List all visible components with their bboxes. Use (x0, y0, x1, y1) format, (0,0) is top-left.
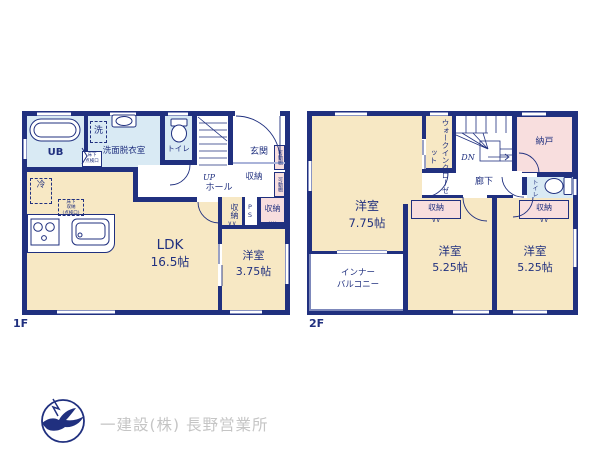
label-pipe-space: PS (246, 200, 256, 222)
label-yoshitsu-b-size: 5.25帖 (497, 262, 573, 275)
label-entrance-closet: 収納 (236, 173, 272, 183)
logo-zigzag (53, 399, 59, 416)
window (168, 112, 188, 116)
label-underfloor-storage: 床下 収納 (点検口) (58, 200, 84, 216)
label-fridge: 冷 (30, 181, 52, 191)
closet-door-marks: ∨∨ (260, 221, 285, 228)
closet-door-marks: ∨∨ (519, 218, 569, 225)
window (430, 112, 448, 116)
label-ldk: LDK (133, 238, 207, 254)
label-roka: 廊下 (456, 177, 512, 187)
label-underfloor-hatch: 床下 点検口 (82, 153, 102, 165)
label-nando: 納戸 (516, 137, 573, 147)
ufs-line3: (点検口) (62, 211, 79, 216)
floor2-plan: 洋室 7.75帖 ウォークインクローゼット DN 納戸 廊下 トイレ 収納 収納… (307, 111, 578, 315)
window (285, 244, 289, 284)
label-wic: ウォークインクローゼット (427, 118, 451, 194)
company-name: 一建設(株) 長野営業所 (100, 413, 269, 435)
label-movable-shelf-2: 可動棚 (275, 173, 284, 196)
room-unit-bath (27, 116, 84, 167)
floorplan-image: UB 洗 洗面脱衣室 床下 点検口 トイレ UP ホール 玄関 収納 可動棚 可… (0, 0, 600, 450)
window (308, 161, 312, 191)
closet-door-marks: ∨∨ (411, 218, 461, 225)
label-dn: DN (458, 153, 478, 162)
label-balcony-line1: インナー (317, 269, 399, 279)
label-closet-b: 収納 (519, 203, 569, 212)
entrance-door-opening (235, 111, 280, 116)
window (573, 179, 577, 195)
label-yoshitsu-1f-size: 3.75帖 (222, 266, 285, 279)
window (337, 250, 387, 254)
yoshitsu-a-door-opening (463, 195, 487, 198)
yoshitsu-main-door-opening (422, 173, 426, 195)
label-yoshitsu-a: 洋室 (408, 245, 492, 258)
stairs-area-2f (456, 116, 512, 171)
label-yoshitsu-main: 洋室 (317, 200, 417, 214)
label-ldk-size: 16.5帖 (133, 256, 207, 270)
label-up: UP (198, 173, 220, 182)
ufs-line2: 収納 (67, 205, 76, 210)
window (110, 112, 136, 116)
label-washer: 洗 (90, 126, 107, 136)
label-yoshitsu-a-size: 5.25帖 (408, 262, 492, 275)
label-yoshitsu-main-size: 7.75帖 (317, 217, 417, 230)
window (57, 310, 115, 314)
label-balcony-line2: バルコニー (317, 281, 399, 291)
company-logo-icon (38, 396, 88, 446)
closet-door-marks: ∨∨ (222, 221, 242, 228)
window (573, 229, 577, 267)
window (522, 112, 546, 116)
yoshitsu-b-door-opening (513, 195, 527, 198)
floor1-tag: 1F (13, 317, 28, 330)
kitchen-counter (27, 214, 115, 253)
label-yoshitsu-1f: 洋室 (222, 250, 285, 263)
window (513, 310, 547, 314)
stairs-area-1f (197, 116, 228, 172)
hatch-line1: 床下 (88, 153, 97, 158)
window (453, 310, 489, 314)
room-yoshitsu-main-a (312, 116, 422, 204)
floor1-plan: UB 洗 洗面脱衣室 床下 点検口 トイレ UP ホール 玄関 収納 可動棚 可… (22, 111, 290, 315)
label-hall: ホール (198, 183, 240, 193)
window (335, 112, 367, 116)
label-closet-a: 収納 (411, 203, 461, 212)
bird-logo (42, 408, 84, 431)
label-toilet-2f: トイレ (529, 177, 538, 198)
label-yoshitsu-b: 洋室 (497, 245, 573, 258)
floor2-tag: 2F (309, 317, 324, 330)
wic-sliding-opening (422, 139, 426, 169)
label-closet-pink-1f: 収納 (260, 204, 285, 213)
label-ub: UB (27, 147, 84, 159)
window (37, 112, 71, 116)
hatch-line2: 点検口 (85, 159, 99, 164)
label-toilet-1f: トイレ (165, 145, 192, 154)
label-movable-shelf-1: 可動棚 (275, 146, 284, 169)
window (230, 310, 262, 314)
